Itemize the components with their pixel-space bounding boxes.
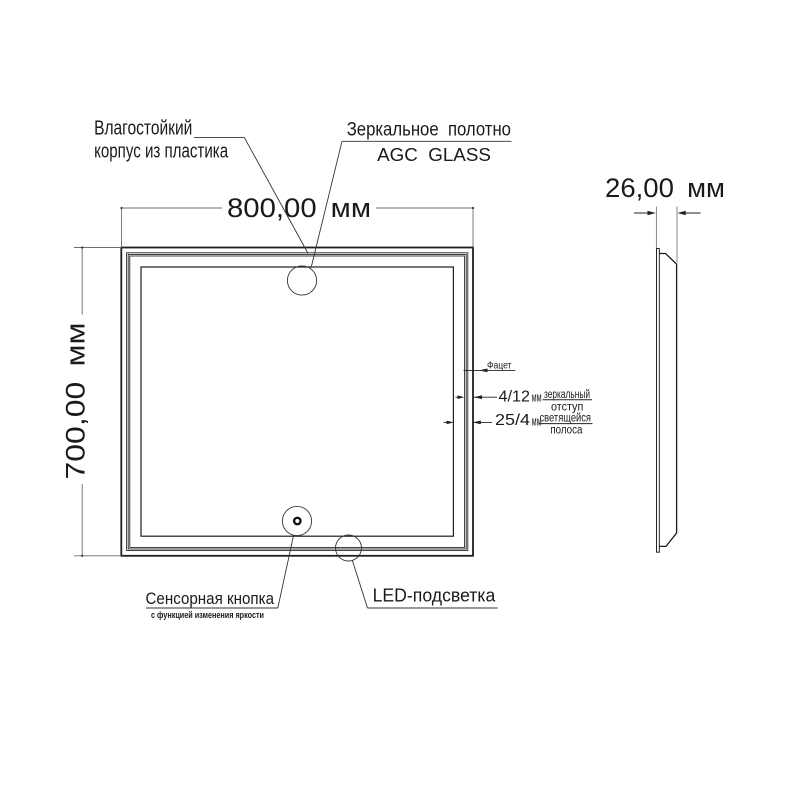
svg-text:Фацет: Фацет xyxy=(487,359,512,371)
svg-text:Зеркальное полотно: Зеркальное полотно xyxy=(347,120,511,141)
svg-text:LED-подсветка: LED-подсветка xyxy=(373,585,496,606)
svg-text:отступ: отступ xyxy=(551,401,583,413)
svg-text:AGC GLASS: AGC GLASS xyxy=(377,144,491,165)
svg-text:мм: мм xyxy=(532,391,542,405)
svg-text:800,00 мм: 800,00 мм xyxy=(227,193,371,223)
svg-text:26,00 мм: 26,00 мм xyxy=(605,173,725,203)
svg-text:зеркальный: зеркальный xyxy=(544,389,590,401)
svg-text:светящейся: светящейся xyxy=(540,413,592,425)
svg-text:Сенсорная кнопка: Сенсорная кнопка xyxy=(146,589,275,608)
svg-text:Влагостойкий: Влагостойкий xyxy=(94,118,192,140)
svg-text:4/12: 4/12 xyxy=(499,388,531,405)
svg-text:25/4: 25/4 xyxy=(495,412,530,429)
svg-text:полоса: полоса xyxy=(550,425,582,437)
svg-text:700,00 мм: 700,00 мм xyxy=(60,323,90,480)
svg-text:с функцией изменения яркости: с функцией изменения яркости xyxy=(151,610,264,621)
svg-text:корпус из пластика: корпус из пластика xyxy=(94,141,229,163)
